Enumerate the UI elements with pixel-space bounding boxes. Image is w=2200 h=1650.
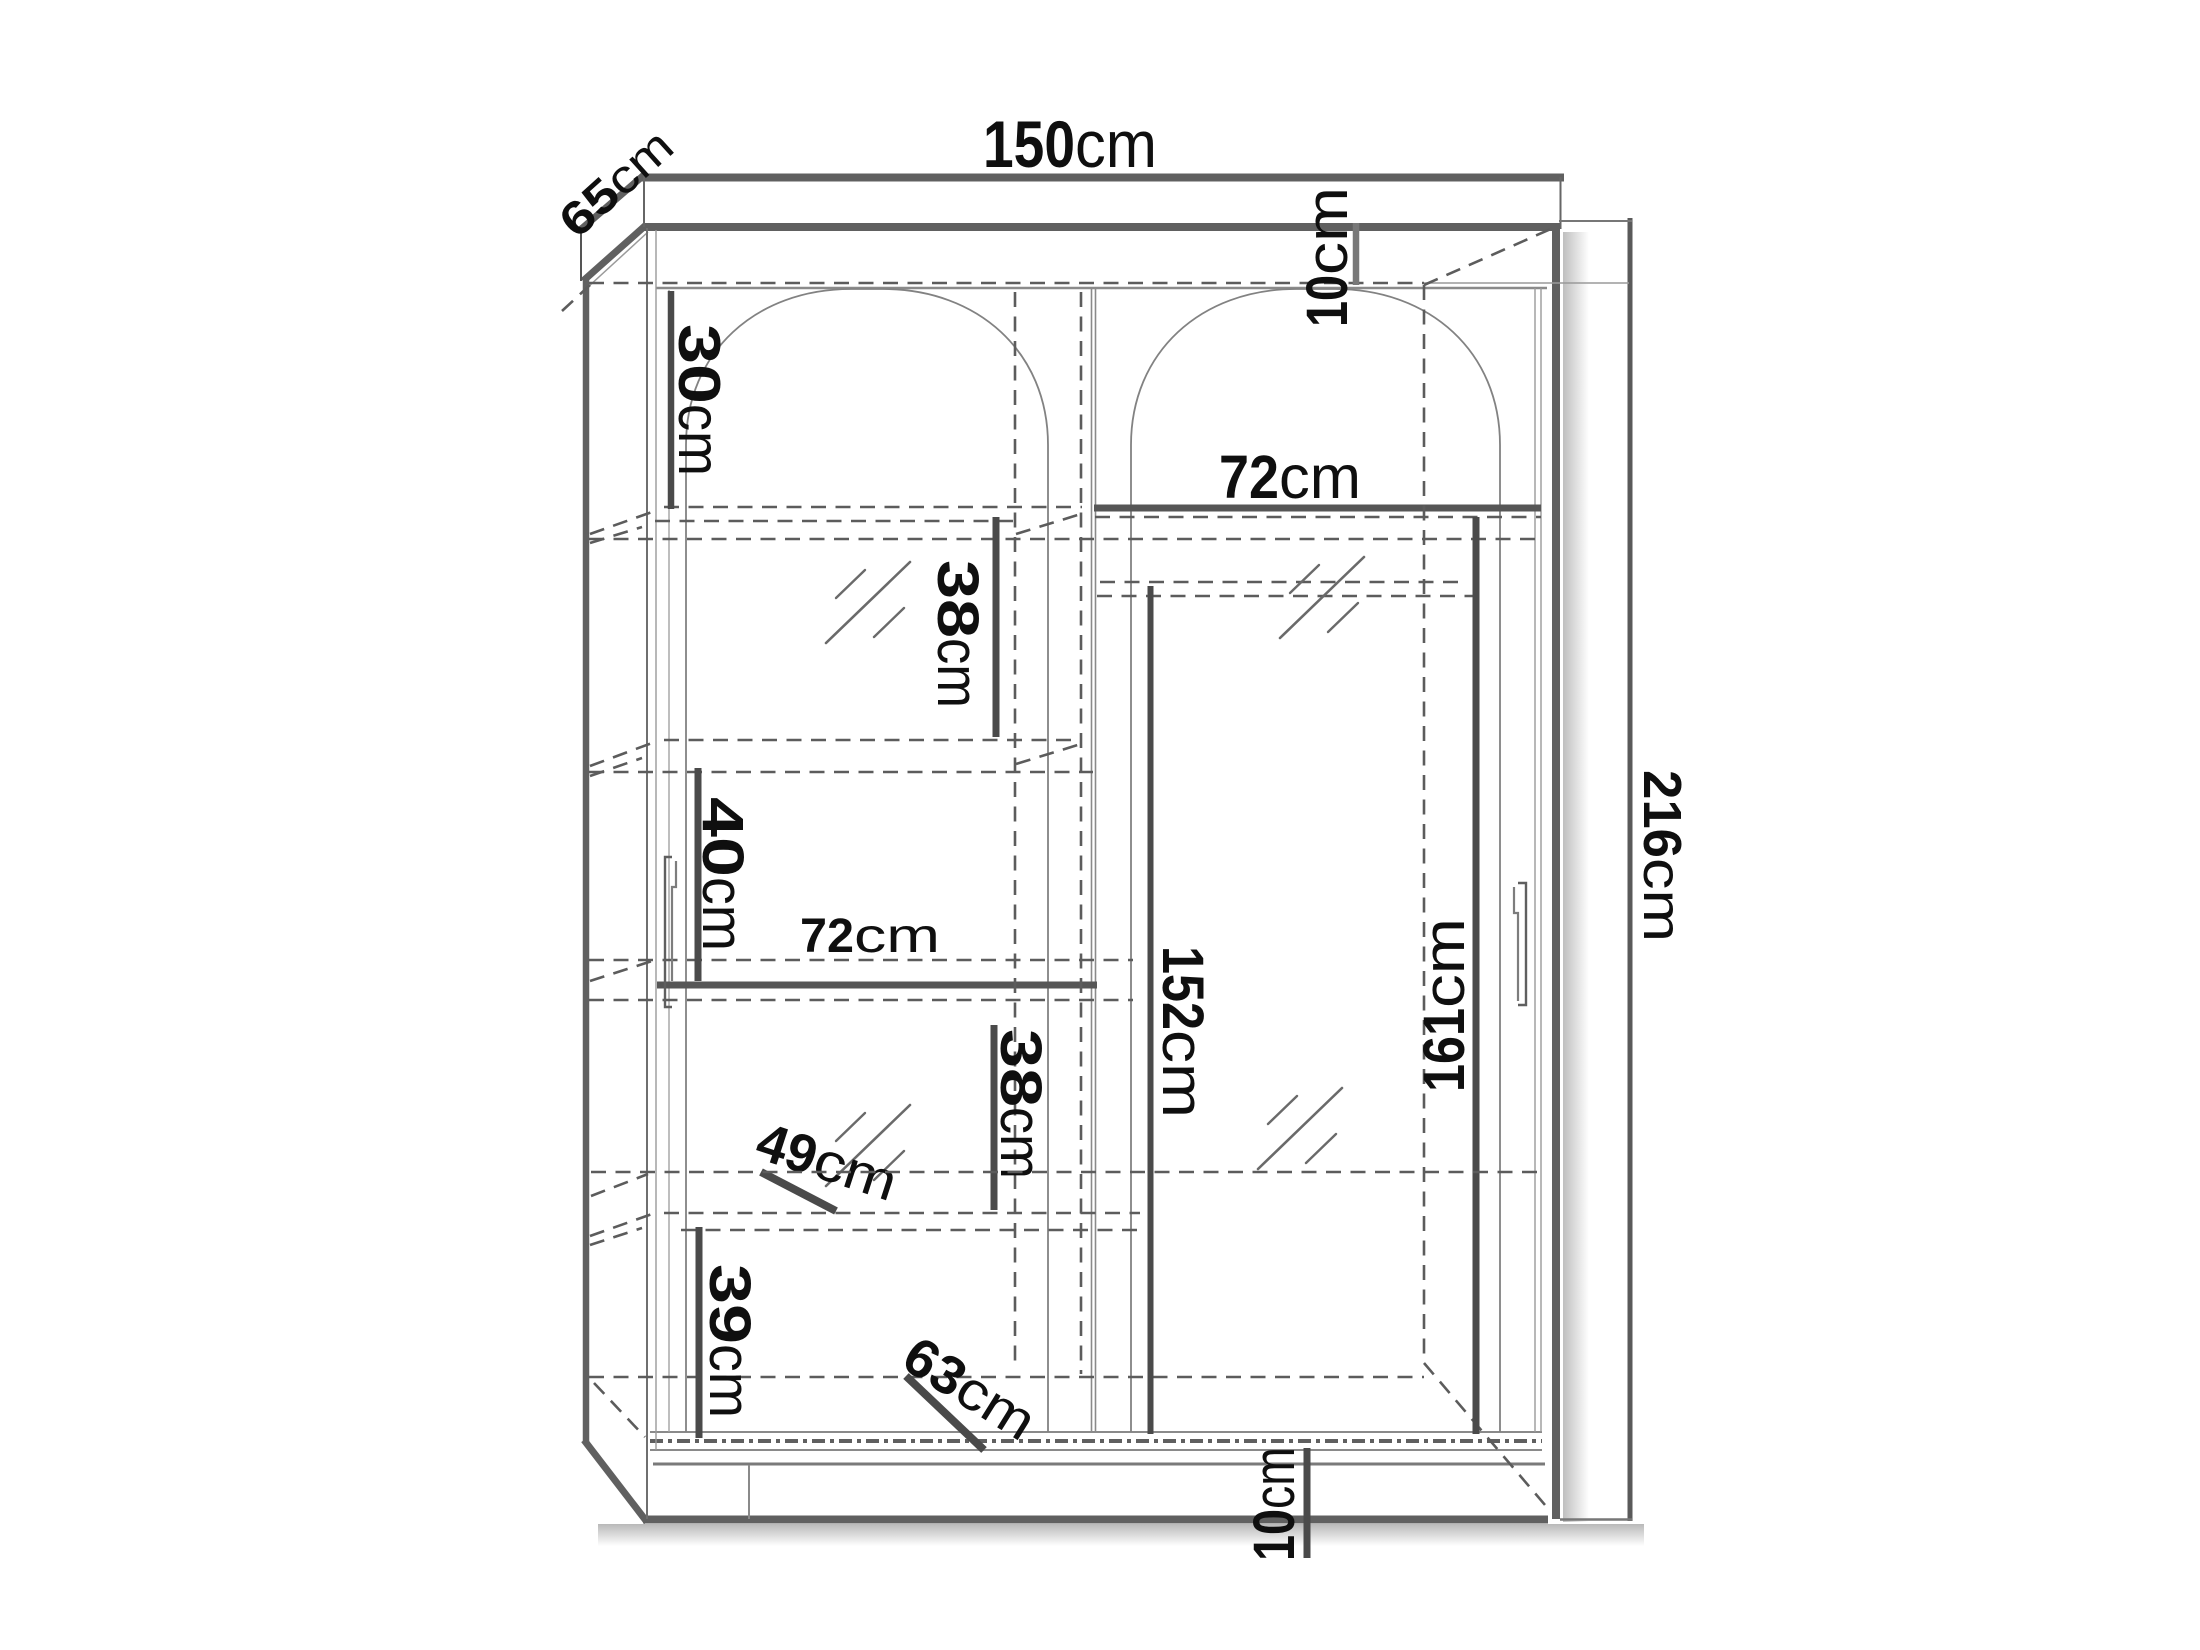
svg-text:150cm: 150cm xyxy=(983,107,1157,181)
svg-text:40cm: 40cm xyxy=(690,797,755,951)
svg-text:72cm: 72cm xyxy=(1219,443,1361,511)
svg-text:10cm: 10cm xyxy=(1242,1447,1307,1561)
svg-text:39cm: 39cm xyxy=(697,1264,762,1418)
svg-text:38cm: 38cm xyxy=(925,560,990,708)
svg-text:72cm: 72cm xyxy=(800,910,940,963)
svg-text:216cm: 216cm xyxy=(1632,770,1692,942)
svg-text:30cm: 30cm xyxy=(666,324,732,476)
svg-text:152cm: 152cm xyxy=(1150,946,1215,1118)
svg-text:10cm: 10cm xyxy=(1295,187,1360,327)
svg-text:38cm: 38cm xyxy=(988,1029,1053,1179)
svg-text:161cm: 161cm xyxy=(1412,918,1477,1092)
